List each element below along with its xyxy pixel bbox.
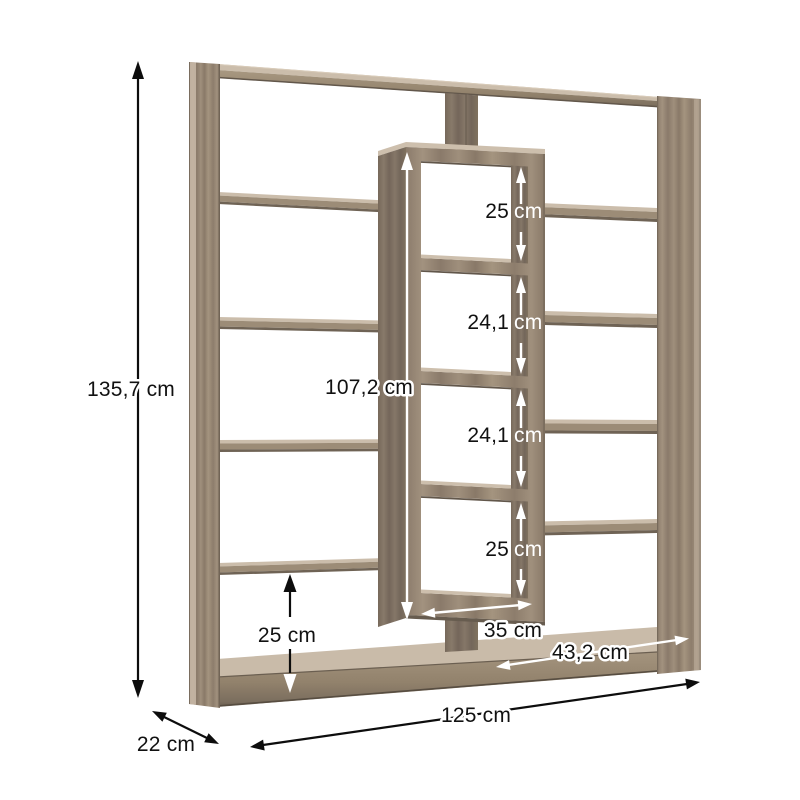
arrow-right-icon — [685, 679, 700, 690]
compartment-3-value: 24,1 — [467, 424, 509, 447]
dimension-overall-height: 135,7 cm — [87, 61, 175, 698]
arrow-down-icon — [132, 680, 144, 698]
compartment-3-unit: cm — [514, 424, 542, 447]
center-divider-top — [445, 93, 478, 152]
diagram-canvas: 135,7 cm 25 cm 125 cm 22 cm — [0, 0, 800, 800]
arrow-up-icon — [132, 61, 144, 79]
arrow-up-icon — [284, 574, 297, 592]
compartment-2-unit: cm — [514, 311, 542, 334]
arrow-left-icon — [250, 740, 265, 751]
compartment-1-value: 25 — [485, 200, 509, 223]
depth-label: 22 cm — [137, 733, 195, 756]
compartment-4-unit: cm — [514, 538, 542, 561]
compartment-2-value: 24,1 — [467, 311, 509, 334]
compartment-1-unit: cm — [514, 200, 542, 223]
bookcase-dimension-diagram: 135,7 cm 25 cm 125 cm 22 cm — [0, 0, 800, 800]
overall-width-label: 125 cm — [441, 704, 511, 727]
left-panel — [189, 62, 220, 708]
right-panel — [657, 96, 701, 674]
overall-height-label: 135,7 cm — [87, 378, 175, 401]
bottom-right-width-label: 43,2 cm — [552, 641, 628, 664]
center-divider-bottom — [445, 619, 478, 652]
middle-column-height-label: 107,2 cm — [325, 376, 413, 399]
bottom-left-height-label: 25 cm — [258, 624, 316, 647]
dimension-depth: 22 cm — [137, 711, 219, 756]
arrow-up-left-icon — [152, 711, 167, 722]
compartment-4-value: 25 — [485, 538, 509, 561]
arrow-down-right-icon — [204, 733, 219, 744]
middle-column-width-label: 35 cm — [484, 619, 542, 642]
